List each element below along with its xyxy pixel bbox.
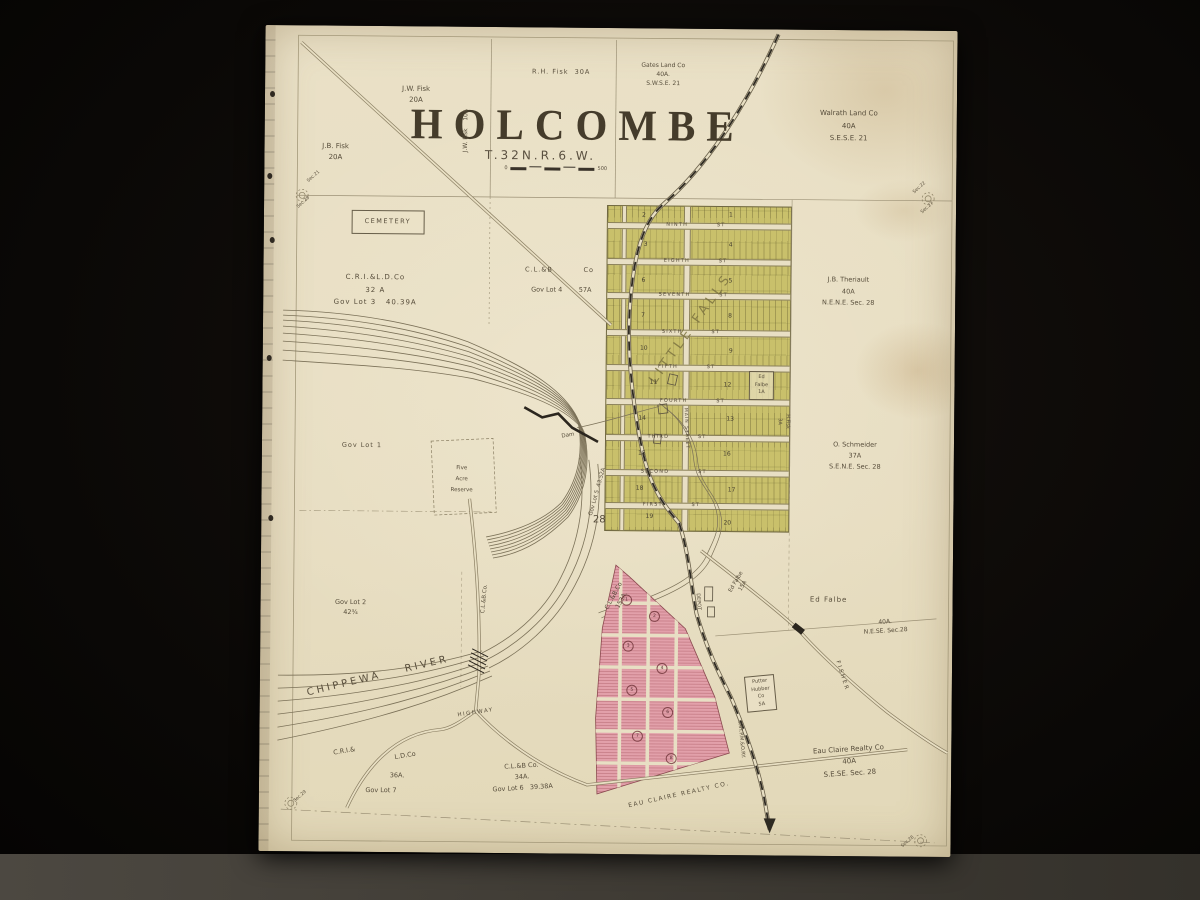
- block-number-19: 19: [645, 513, 653, 520]
- gov-lot-5: Gov Lot 5 43.52A: [587, 467, 608, 517]
- sec-29-sw: Sec.29: [293, 790, 309, 805]
- rh-fisk-30a: R.H. Fisk 30A: [532, 67, 590, 77]
- eau-claire-realty-40a: Eau Claire Realty Co 40A S.E.SE. Sec. 28: [813, 742, 886, 782]
- walrath-land-co: Walrath Land Co 40A S.E.S.E. 21: [820, 107, 878, 145]
- sec-28-nw: Sec.28: [296, 196, 312, 211]
- o-schmeider: O. Schmeider 37A S.E.N.E. Sec. 28: [829, 439, 881, 473]
- ed-falbe-40a-desc: 40A. N.E.SE. Sec.28: [863, 616, 908, 637]
- scale-segment: [511, 167, 527, 170]
- map-labels-layer: HOLCOMBE T.32N.R.6.W. 0 500 J.W. Fisk 20…: [258, 25, 957, 857]
- sec-21-nw: Sec.21: [306, 170, 322, 185]
- cri-ld-co-3: 36A.: [390, 771, 405, 781]
- block-number-3: 3: [644, 241, 648, 248]
- pink-block-number-8: 8: [666, 753, 677, 764]
- map-page: HOLCOMBE T.32N.R.6.W. 0 500 J.W. Fisk 20…: [258, 25, 957, 857]
- pink-block-number-5: 5: [626, 685, 637, 696]
- scale-segment: [530, 166, 542, 170]
- street-second: SECOND ST: [641, 469, 707, 477]
- cril-d-co: C.R.I.&L.D.Co 32 A Gov Lot 3 40.39A: [334, 271, 417, 310]
- street-third: THIRD ST: [647, 434, 706, 442]
- block-number-4: 4: [729, 242, 733, 249]
- cri-ld-co-4: Gov Lot 7: [365, 786, 396, 796]
- block-number-16: 16: [723, 451, 731, 458]
- sec-22-ne: Sec.22: [912, 181, 928, 196]
- block-number-17: 17: [728, 487, 736, 494]
- chippewa-river: CHIPPEWA RIVER: [305, 652, 450, 701]
- block-number-12: 12: [724, 382, 732, 389]
- dam: Dam: [561, 431, 575, 441]
- cri-ld-co-2: L.D.Co: [394, 750, 417, 763]
- map-subtitle: T.32N.R.6.W.: [485, 148, 596, 163]
- street-ninth: NINTH ST: [666, 222, 725, 230]
- section-number-28: 28: [593, 512, 606, 527]
- ed-falbe-15a: Ed Falbe 15A: [727, 570, 753, 598]
- block-number-10: 10: [640, 345, 648, 352]
- eau-claire-realty-plat: EAU CLAIRE REALTY CO.: [627, 779, 730, 810]
- clb-co-lot4-a: C.L.&B Co: [525, 265, 594, 275]
- street-sixth: SIXTH ST: [662, 329, 720, 337]
- h-fisk-3a: H.Fisk 3A: [776, 414, 791, 429]
- pink-block-number-6: 6: [662, 707, 673, 718]
- highway: HIGHWAY: [457, 706, 494, 720]
- street-eighth: EIGHTH ST: [664, 258, 728, 266]
- pink-block-number-1: 1: [621, 595, 632, 606]
- block-number-14: 14: [638, 415, 646, 422]
- block-number-2: 2: [642, 212, 646, 219]
- sec-28-se: Sec.28: [901, 835, 917, 850]
- five-acre-reserve: Five Acre Reserve: [450, 463, 472, 496]
- table-surface: [0, 854, 1200, 900]
- pink-block-number-3: 3: [623, 641, 634, 652]
- scale-segment: [579, 167, 595, 170]
- pink-block-number-7: 7: [632, 731, 643, 742]
- scale-500-label: 500: [598, 166, 608, 172]
- scale-segment: [564, 167, 576, 171]
- scale-zero-label: 0: [504, 165, 507, 171]
- block-number-15: 15: [638, 450, 646, 457]
- scale-bar: 0 500: [504, 165, 607, 172]
- block-number-9: 9: [729, 348, 733, 355]
- gates-land-co: Gates Land Co 40A. S.W.S.E. 21: [641, 61, 685, 88]
- photo-of-plat-map: HOLCOMBE T.32N.R.6.W. 0 500 J.W. Fisk 20…: [0, 0, 1200, 900]
- ed-falbe-40a-name: Ed Falbe: [810, 595, 848, 606]
- scale-segment: [545, 167, 561, 170]
- street-seventh: SEVENTH ST: [659, 292, 728, 300]
- depot: DEPOT: [693, 593, 702, 611]
- jb-fisk-20a: J.B. Fisk 20A: [322, 141, 349, 162]
- street-fourth: FOURTH ST: [660, 398, 725, 406]
- fisher-road: FISHER: [833, 660, 850, 693]
- clb-co-road: C.L.&B.Co.: [479, 584, 490, 614]
- cstpmo-railway: C.ST.P.M.&O.RY.: [735, 720, 746, 759]
- gov-lot-2: Gov Lot 2 42¾: [335, 598, 366, 618]
- pink-block-number-2: 2: [649, 611, 660, 622]
- block-number-20: 20: [723, 520, 731, 527]
- ed-falbe-1a: Ed Falbe 1A: [749, 371, 774, 400]
- block-number-11: 11: [650, 379, 658, 386]
- clb-co-34a: C.L.&B Co. 34A. Gov Lot 6 39.38A: [491, 759, 553, 796]
- block-number-8: 8: [728, 313, 732, 320]
- pink-block-number-4: 4: [656, 663, 667, 674]
- street-fifth: FIFTH ST: [658, 364, 715, 372]
- block-number-1: 1: [729, 212, 733, 219]
- block-number-13: 13: [726, 416, 734, 423]
- jb-theriault: J.B. Theriault 40A N.E.N.E. Sec. 28: [822, 274, 875, 310]
- sec-27-ne: Sec.27: [920, 201, 936, 216]
- jw-fisk-20a: J.W. Fisk 20A: [402, 84, 430, 105]
- cemetery: CEMETERY: [352, 210, 425, 234]
- main-street: MAIN STREET: [681, 408, 690, 450]
- clb-co-lot4-b: Gov Lot 4 57A: [531, 285, 592, 295]
- block-number-18: 18: [636, 485, 644, 492]
- block-number-5: 5: [728, 278, 732, 285]
- block-number-7: 7: [641, 312, 645, 319]
- street-first: FIRST ST: [643, 502, 701, 510]
- gov-lot-1: Gov Lot 1: [342, 441, 382, 451]
- cri-ld-co-1: C.R.I.&: [333, 745, 356, 758]
- putter-hubber-co: Putter Hubber Co 5A: [744, 674, 778, 713]
- block-number-6: 6: [641, 277, 645, 284]
- jw-fisk-10a: J.W. Fisk 10A: [461, 109, 470, 152]
